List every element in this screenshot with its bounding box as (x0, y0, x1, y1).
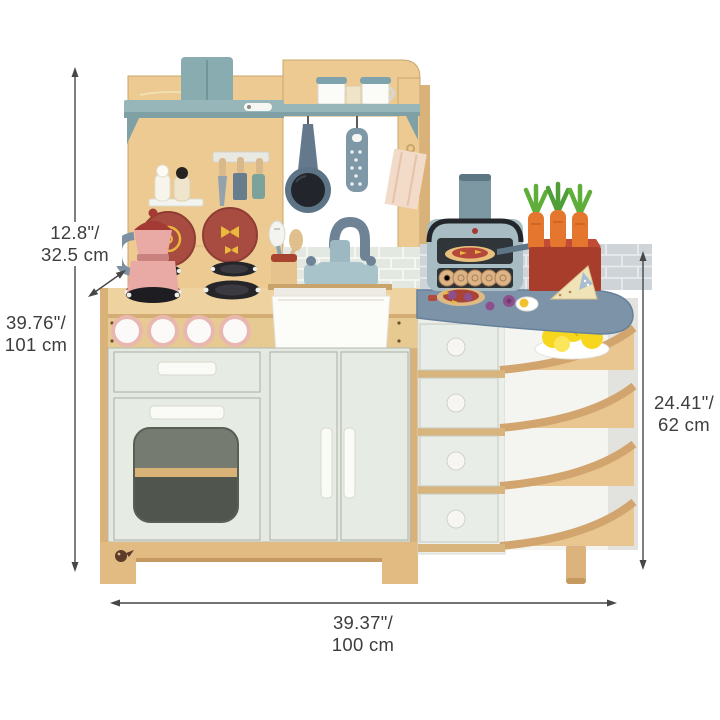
drawer (420, 378, 498, 428)
grater (346, 116, 368, 192)
knob (147, 315, 179, 347)
carrots (526, 184, 590, 252)
oven-window (134, 428, 238, 522)
drawer (420, 494, 498, 542)
width-dimension-arrow (110, 600, 617, 607)
burner (211, 262, 257, 277)
overall-width-cm: 100 cm (298, 634, 428, 656)
burner (204, 281, 261, 300)
side-unit-height-inches: 24.41"/ (648, 392, 720, 414)
product-dimension-image: 12.8"/ 32.5 cm 39.76"/ 101 cm 24.41"/ 62… (0, 0, 720, 720)
sink (268, 284, 392, 352)
side-unit (417, 174, 652, 584)
side-unit-height-cm: 62 cm (648, 414, 720, 436)
knob (183, 315, 215, 347)
oven-door (114, 398, 260, 540)
side-unit-leg (566, 544, 586, 584)
hutch-depth-inches: 12.8"/ (28, 222, 122, 244)
height-dimension-arrow (72, 67, 79, 572)
overall-height-label: 39.76"/ 101 cm (0, 312, 72, 356)
side-unit-height-label: 24.41"/ 62 cm (648, 392, 720, 436)
mug (360, 77, 394, 104)
base-rail (100, 542, 418, 586)
mug (316, 77, 350, 104)
vent-box (181, 57, 233, 105)
drawer (420, 324, 498, 370)
hutch-depth-label: 12.8"/ 32.5 cm (28, 222, 122, 266)
mug (346, 86, 361, 104)
overall-width-inches: 39.37"/ (298, 612, 428, 634)
overall-height-inches: 39.76"/ (0, 312, 72, 334)
oven-drawer (114, 352, 260, 392)
knife-strip (213, 152, 269, 206)
drawer (420, 436, 498, 486)
side-height-dimension-arrow (640, 251, 647, 570)
knob (111, 315, 143, 347)
firewood-logs (439, 270, 511, 286)
frying-pan (285, 116, 331, 213)
fried-egg (516, 297, 538, 311)
overall-width-label: 39.37"/ 100 cm (298, 612, 428, 656)
knob (219, 315, 251, 347)
pizza-board (437, 288, 485, 306)
overall-height-cm: 101 cm (0, 334, 72, 356)
hutch-depth-cm: 32.5 cm (28, 244, 122, 266)
